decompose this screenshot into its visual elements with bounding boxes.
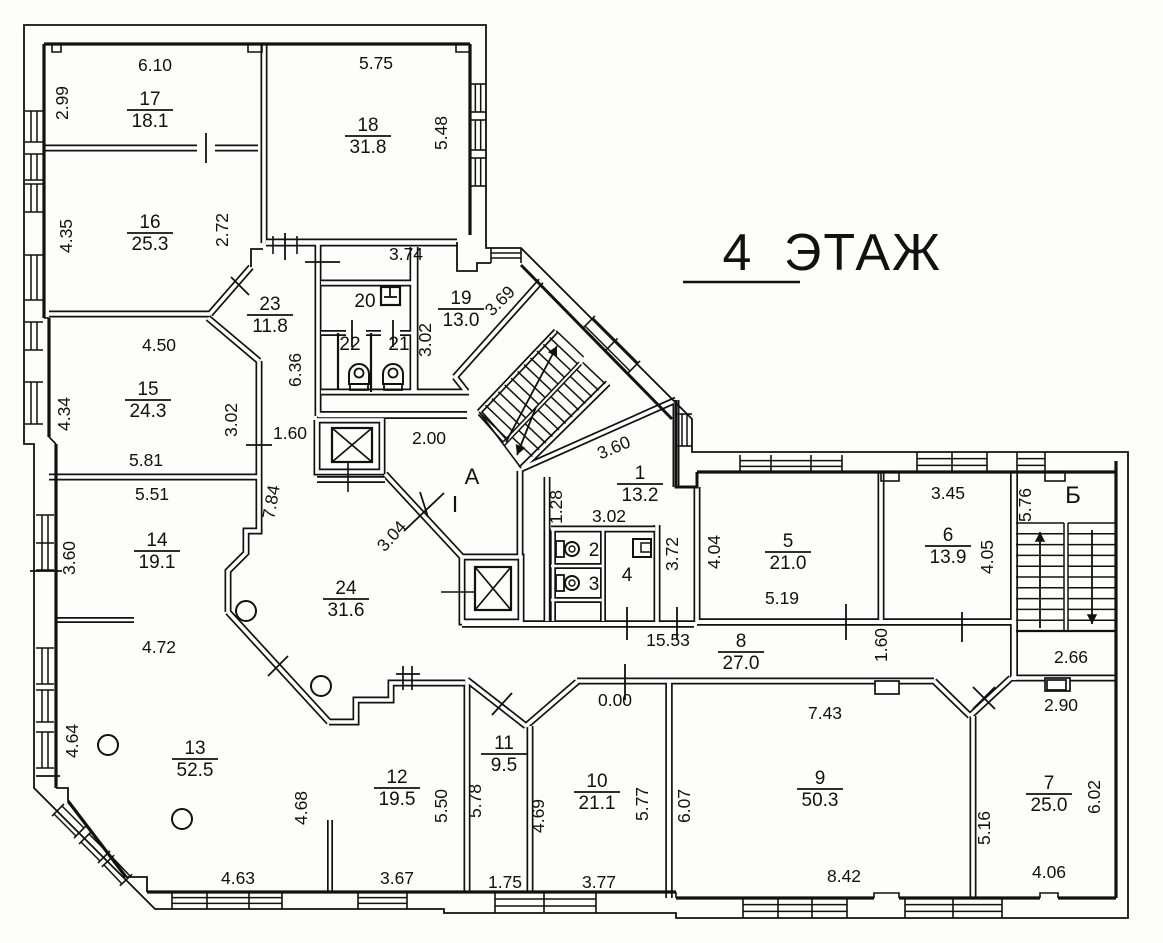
svg-text:3.45: 3.45 [931, 483, 965, 503]
svg-text:5: 5 [783, 531, 794, 552]
svg-text:25.3: 25.3 [132, 234, 169, 255]
svg-text:21.1: 21.1 [579, 793, 616, 814]
svg-text:3.02: 3.02 [221, 403, 241, 437]
svg-text:8.42: 8.42 [827, 866, 861, 886]
svg-text:1.28: 1.28 [546, 490, 566, 524]
svg-text:52.5: 52.5 [177, 760, 214, 781]
svg-text:13: 13 [184, 738, 205, 759]
svg-text:2.00: 2.00 [412, 428, 446, 448]
svg-text:9.5: 9.5 [491, 755, 517, 776]
svg-text:15.53: 15.53 [646, 630, 690, 650]
svg-text:6.02: 6.02 [1084, 780, 1104, 814]
svg-text:4.06: 4.06 [1032, 862, 1066, 882]
svg-text:5.81: 5.81 [129, 450, 163, 470]
svg-text:5.16: 5.16 [974, 811, 994, 845]
svg-text:1.75: 1.75 [488, 872, 522, 892]
svg-text:18: 18 [357, 115, 378, 136]
svg-text:22: 22 [339, 334, 360, 355]
svg-text:24.3: 24.3 [130, 401, 167, 422]
svg-text:11: 11 [494, 733, 514, 754]
svg-text:5.75: 5.75 [359, 53, 393, 73]
svg-text:3.60: 3.60 [59, 541, 79, 575]
svg-text:50.3: 50.3 [802, 790, 839, 811]
svg-text:19.5: 19.5 [379, 789, 416, 810]
svg-text:6.10: 6.10 [138, 55, 172, 75]
svg-text:0.00: 0.00 [598, 690, 632, 710]
svg-text:13.9: 13.9 [930, 547, 967, 568]
svg-text:4.35: 4.35 [56, 219, 76, 253]
svg-text:ЭТАЖ: ЭТАЖ [784, 224, 942, 282]
svg-text:4.72: 4.72 [142, 637, 176, 657]
svg-text:23: 23 [259, 294, 280, 315]
svg-text:3: 3 [589, 574, 600, 595]
svg-text:18.1: 18.1 [132, 111, 169, 132]
svg-text:7.43: 7.43 [808, 703, 842, 723]
svg-text:6: 6 [943, 525, 954, 546]
svg-text:3.02: 3.02 [592, 506, 626, 526]
svg-text:4.64: 4.64 [62, 724, 82, 758]
svg-text:7: 7 [1044, 773, 1055, 794]
svg-text:12: 12 [386, 767, 407, 788]
svg-text:2.72: 2.72 [212, 213, 232, 247]
svg-text:3.67: 3.67 [380, 868, 414, 888]
svg-text:21: 21 [388, 334, 409, 355]
svg-text:17: 17 [139, 89, 160, 110]
svg-text:3.72: 3.72 [662, 537, 682, 571]
svg-text:А: А [465, 464, 480, 489]
svg-text:4: 4 [622, 565, 633, 586]
svg-text:2.90: 2.90 [1044, 695, 1078, 715]
svg-text:9: 9 [815, 768, 826, 789]
svg-text:5.48: 5.48 [431, 116, 451, 150]
svg-text:15: 15 [137, 379, 158, 400]
svg-text:5.19: 5.19 [765, 588, 799, 608]
svg-text:8: 8 [736, 631, 747, 652]
svg-text:3.02: 3.02 [415, 323, 435, 357]
svg-text:4.50: 4.50 [142, 335, 176, 355]
svg-text:2.99: 2.99 [52, 86, 72, 120]
svg-text:4.63: 4.63 [221, 868, 255, 888]
svg-text:5.78: 5.78 [465, 784, 485, 818]
svg-text:2.66: 2.66 [1054, 647, 1088, 667]
svg-text:1: 1 [635, 463, 646, 484]
svg-text:11.8: 11.8 [252, 316, 288, 337]
svg-text:4: 4 [723, 224, 752, 282]
svg-text:3.74: 3.74 [389, 244, 423, 264]
svg-text:16: 16 [139, 212, 160, 233]
svg-text:5.51: 5.51 [135, 484, 169, 504]
svg-text:4.05: 4.05 [977, 540, 997, 574]
svg-text:20: 20 [354, 291, 375, 312]
svg-text:31.8: 31.8 [350, 137, 387, 158]
svg-text:13.2: 13.2 [622, 485, 659, 506]
svg-text:3.77: 3.77 [582, 872, 616, 892]
svg-text:4.34: 4.34 [54, 397, 74, 431]
svg-text:Б: Б [1065, 482, 1081, 509]
svg-text:6.36: 6.36 [285, 353, 305, 387]
svg-text:4.68: 4.68 [291, 791, 311, 825]
svg-text:19: 19 [450, 288, 471, 309]
svg-text:5.50: 5.50 [431, 789, 451, 823]
svg-text:21.0: 21.0 [770, 553, 807, 574]
svg-text:6.07: 6.07 [674, 789, 694, 823]
svg-text:27.0: 27.0 [723, 653, 760, 674]
svg-text:1.60: 1.60 [871, 628, 891, 662]
svg-text:5.76: 5.76 [1015, 488, 1035, 522]
svg-text:31.6: 31.6 [328, 600, 365, 621]
svg-text:1.60: 1.60 [273, 423, 307, 443]
svg-text:2: 2 [589, 540, 600, 561]
svg-text:14: 14 [146, 530, 168, 551]
svg-text:5.77: 5.77 [632, 787, 652, 821]
svg-text:4.04: 4.04 [704, 535, 724, 569]
svg-text:25.0: 25.0 [1031, 795, 1068, 816]
svg-text:4.69: 4.69 [528, 799, 548, 833]
svg-text:10: 10 [586, 771, 607, 792]
svg-text:24: 24 [335, 578, 357, 599]
svg-text:13.0: 13.0 [443, 310, 480, 331]
svg-text:19.1: 19.1 [139, 552, 176, 573]
